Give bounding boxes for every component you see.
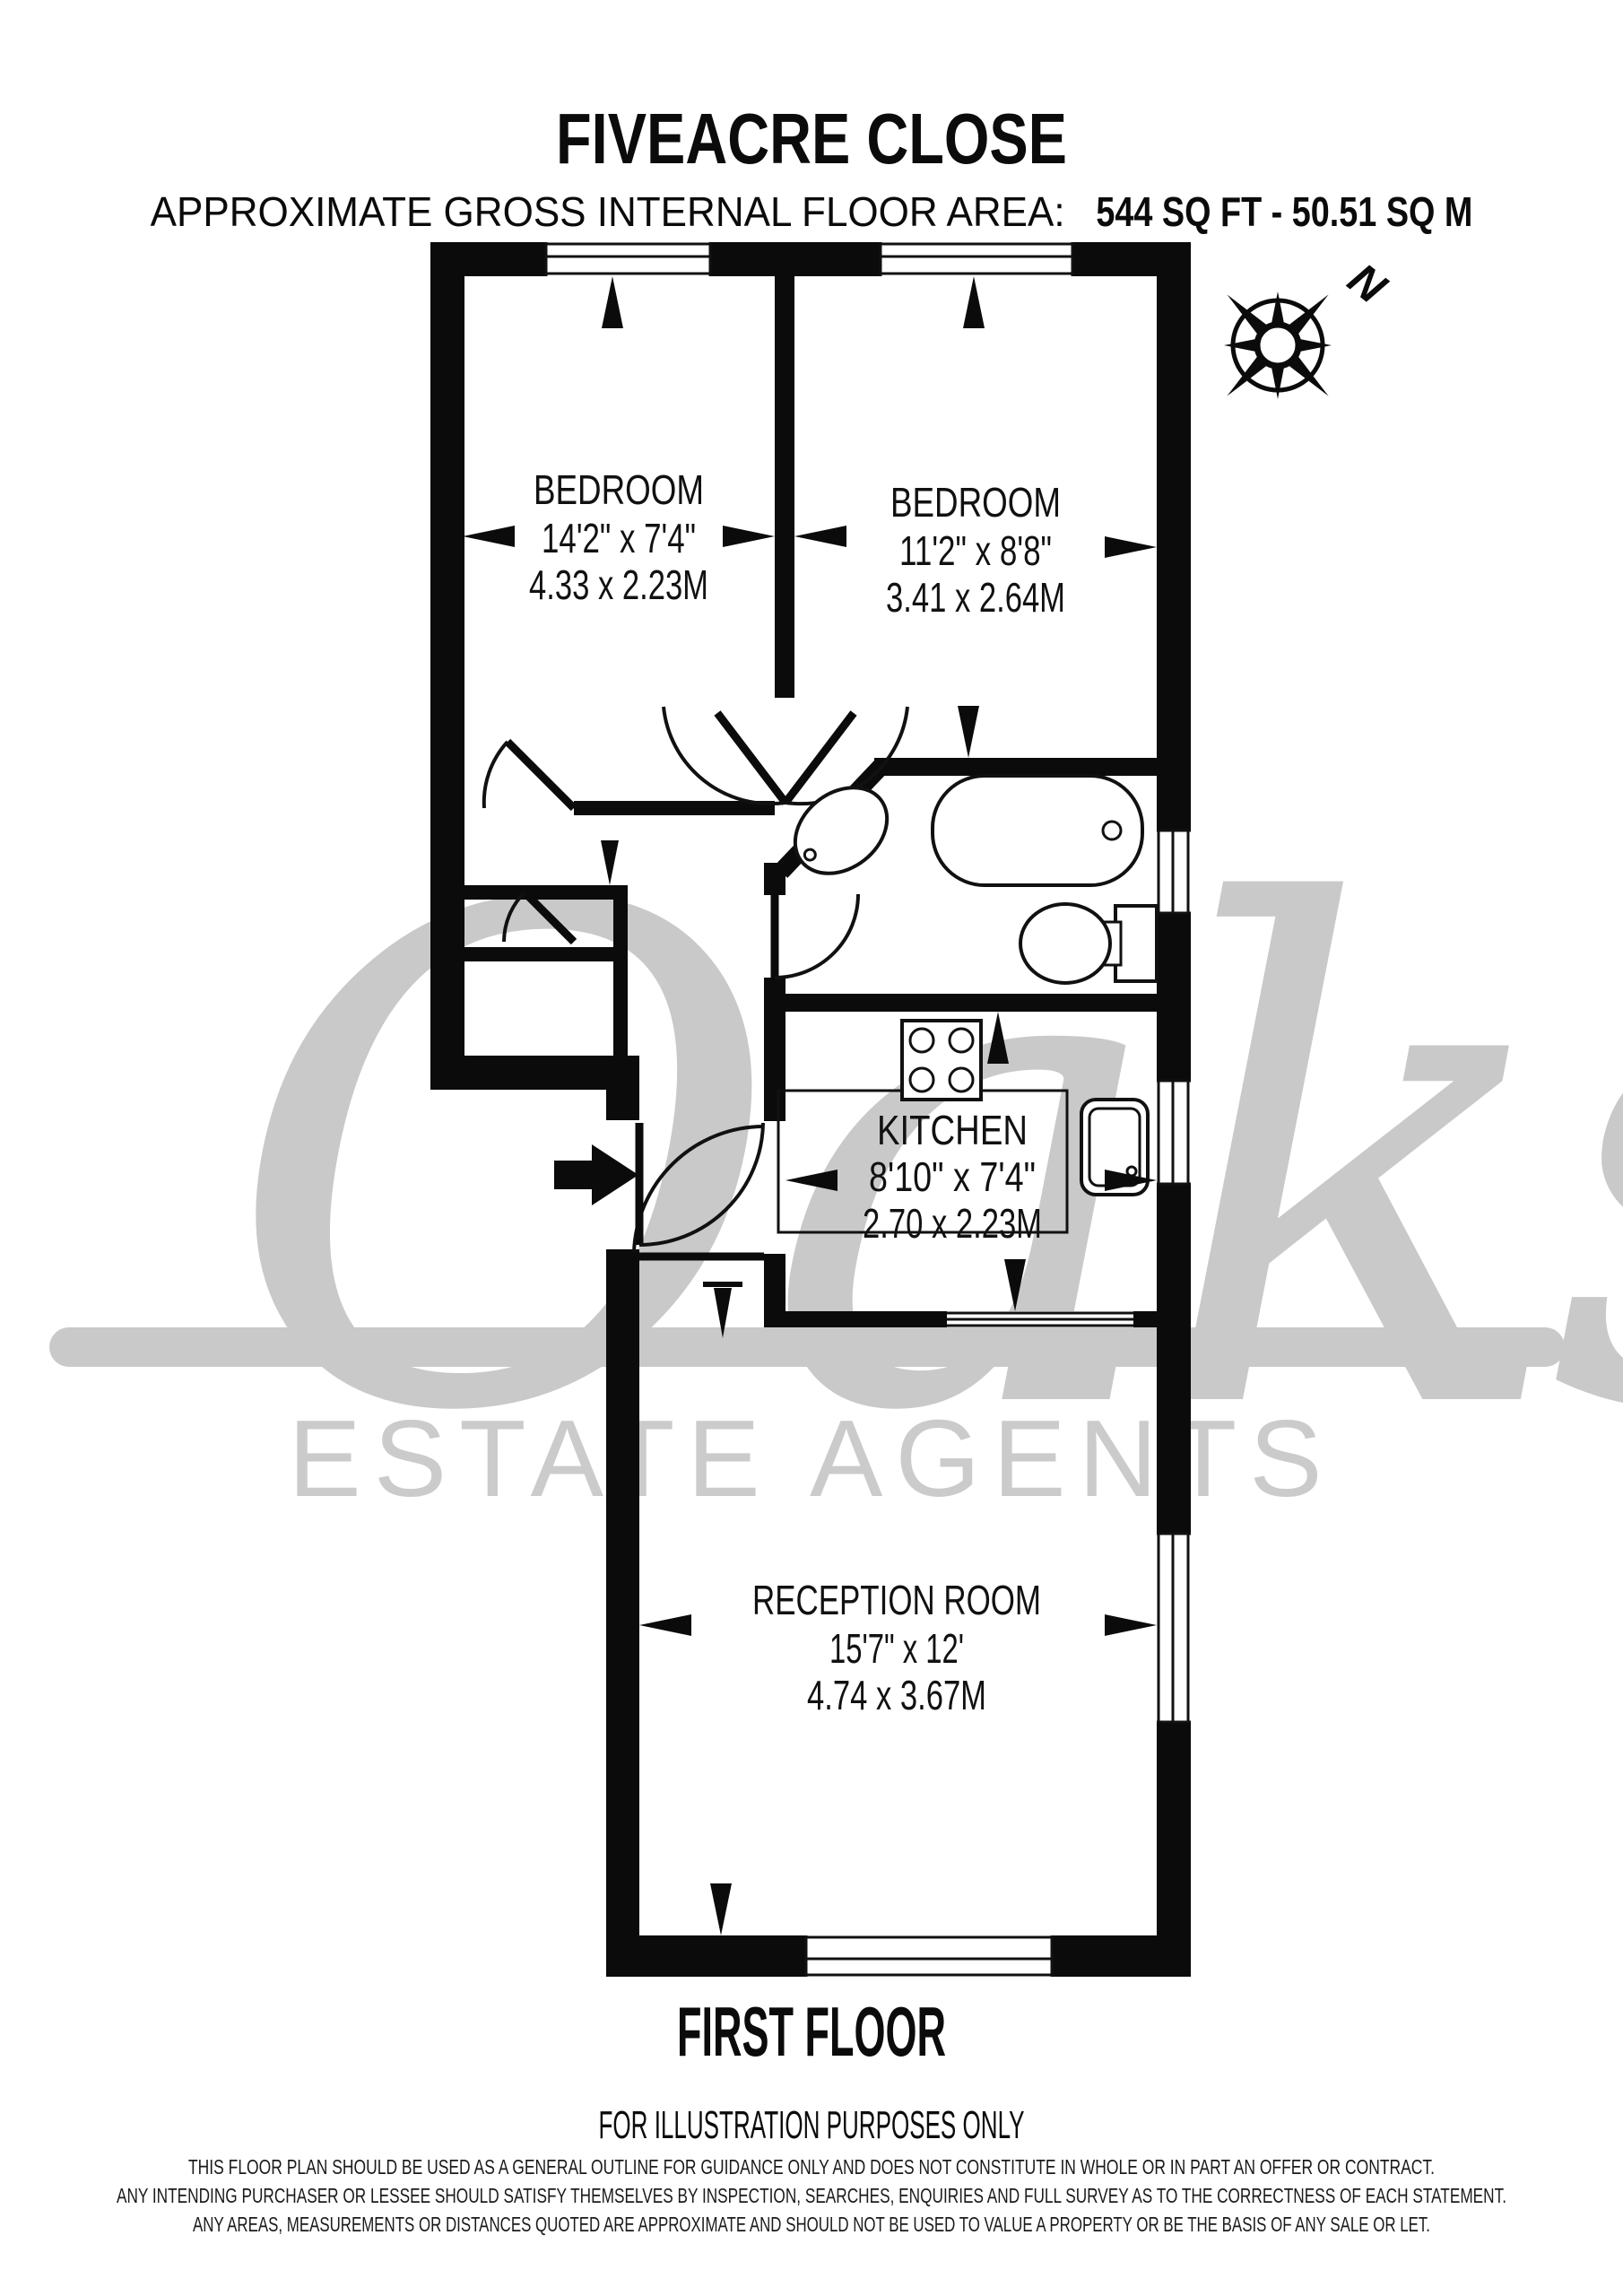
window bbox=[1157, 1534, 1191, 1722]
svg-text:4.74 x 3.67M: 4.74 x 3.67M bbox=[807, 1672, 986, 1718]
svg-text:3.41 x 2.64M: 3.41 x 2.64M bbox=[886, 574, 1065, 621]
svg-text:BEDROOM: BEDROOM bbox=[534, 466, 704, 513]
window bbox=[1157, 831, 1191, 913]
floor-plan: Oaks ESTATE AGENTS bbox=[0, 0, 1623, 2296]
bedroom1-label: BEDROOM 14'2" x 7'4" 4.33 x 2.23M bbox=[529, 466, 708, 608]
svg-text:14'2" x 7'4": 14'2" x 7'4" bbox=[542, 515, 696, 561]
hob bbox=[902, 1021, 981, 1100]
disclaimer-line: ANY AREAS, MEASUREMENTS OR DISTANCES QUO… bbox=[193, 2213, 1430, 2236]
svg-text:RECEPTION ROOM: RECEPTION ROOM bbox=[752, 1577, 1041, 1623]
illustration-note: FOR ILLUSTRATION PURPOSES ONLY bbox=[599, 2103, 1025, 2147]
kitchen-label: KITCHEN 8'10" x 7'4" 2.70 x 2.23M bbox=[863, 1107, 1042, 1247]
svg-text:KITCHEN: KITCHEN bbox=[877, 1107, 1028, 1153]
toilet bbox=[1020, 904, 1157, 983]
page-title: FIVEACRE CLOSE bbox=[556, 99, 1067, 178]
footer: FIRST FLOOR FOR ILLUSTRATION PURPOSES ON… bbox=[117, 1992, 1506, 2236]
header: FIVEACRE CLOSE APPROXIMATE GROSS INTERNA… bbox=[151, 99, 1473, 235]
floor-label: FIRST FLOOR bbox=[677, 1992, 946, 2071]
watermark: Oaks ESTATE AGENTS bbox=[49, 768, 1623, 1561]
bedroom2-label: BEDROOM 11'2" x 8'8" 3.41 x 2.64M bbox=[886, 479, 1065, 621]
window bbox=[1157, 1081, 1191, 1184]
disclaimer-line: ANY INTENDING PURCHASER OR LESSEE SHOULD… bbox=[117, 2184, 1506, 2207]
svg-text:4.33 x 2.23M: 4.33 x 2.23M bbox=[529, 561, 708, 608]
svg-text:BEDROOM: BEDROOM bbox=[890, 479, 1061, 526]
svg-text:2.70 x 2.23M: 2.70 x 2.23M bbox=[863, 1200, 1042, 1247]
svg-text:8'10" x 7'4": 8'10" x 7'4" bbox=[869, 1153, 1036, 1200]
watermark-bar bbox=[49, 1327, 1565, 1367]
window bbox=[806, 1935, 1052, 1977]
compass-rose: N bbox=[1224, 254, 1396, 399]
window bbox=[881, 242, 1072, 276]
window bbox=[546, 242, 710, 276]
window bbox=[947, 1311, 1133, 1327]
svg-text:15'7" x 12': 15'7" x 12' bbox=[829, 1625, 964, 1672]
north-label: N bbox=[1339, 254, 1396, 314]
disclaimer-line: THIS FLOOR PLAN SHOULD BE USED AS A GENE… bbox=[188, 2155, 1435, 2179]
reception-label: RECEPTION ROOM 15'7" x 12' 4.74 x 3.67M bbox=[752, 1577, 1041, 1718]
area-line: APPROXIMATE GROSS INTERNAL FLOOR AREA: 5… bbox=[151, 188, 1473, 235]
svg-text:11'2" x 8'8": 11'2" x 8'8" bbox=[899, 527, 1052, 574]
